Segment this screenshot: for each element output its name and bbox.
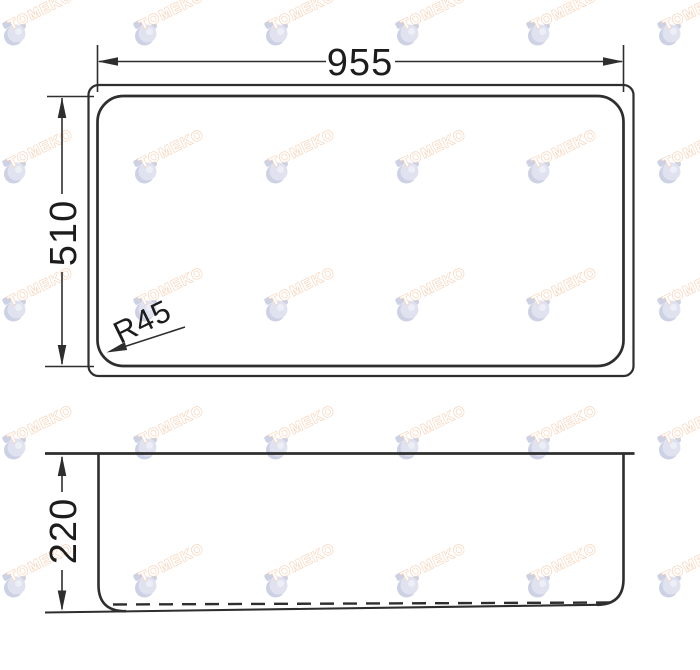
corner-radius-label: R45 — [108, 293, 177, 351]
height-dimension-label: 510 — [43, 200, 85, 266]
technical-drawing-page: TOMEKO 9 — [0, 0, 700, 670]
depth-dimension-label: 220 — [43, 498, 85, 564]
sink-left-wall — [99, 454, 127, 611]
sink-dimension-drawing: TOMEKO 9 — [0, 0, 700, 670]
arrowhead-left-icon — [98, 57, 119, 66]
width-dimension-label: 955 — [327, 42, 393, 84]
sink-right-wall — [597, 454, 624, 605]
watermark-layer — [2, 0, 700, 598]
arrowhead-up-icon — [58, 456, 67, 477]
arrowhead-down-icon — [58, 345, 67, 366]
sink-bottom-line — [45, 605, 598, 613]
sink-bottom-hidden-edge — [113, 603, 612, 605]
arrowhead-down-icon — [58, 591, 67, 612]
arrowhead-right-icon — [603, 57, 624, 66]
drawing-layer: 955 510 R45 — [43, 42, 635, 613]
arrowhead-up-icon — [58, 98, 67, 119]
